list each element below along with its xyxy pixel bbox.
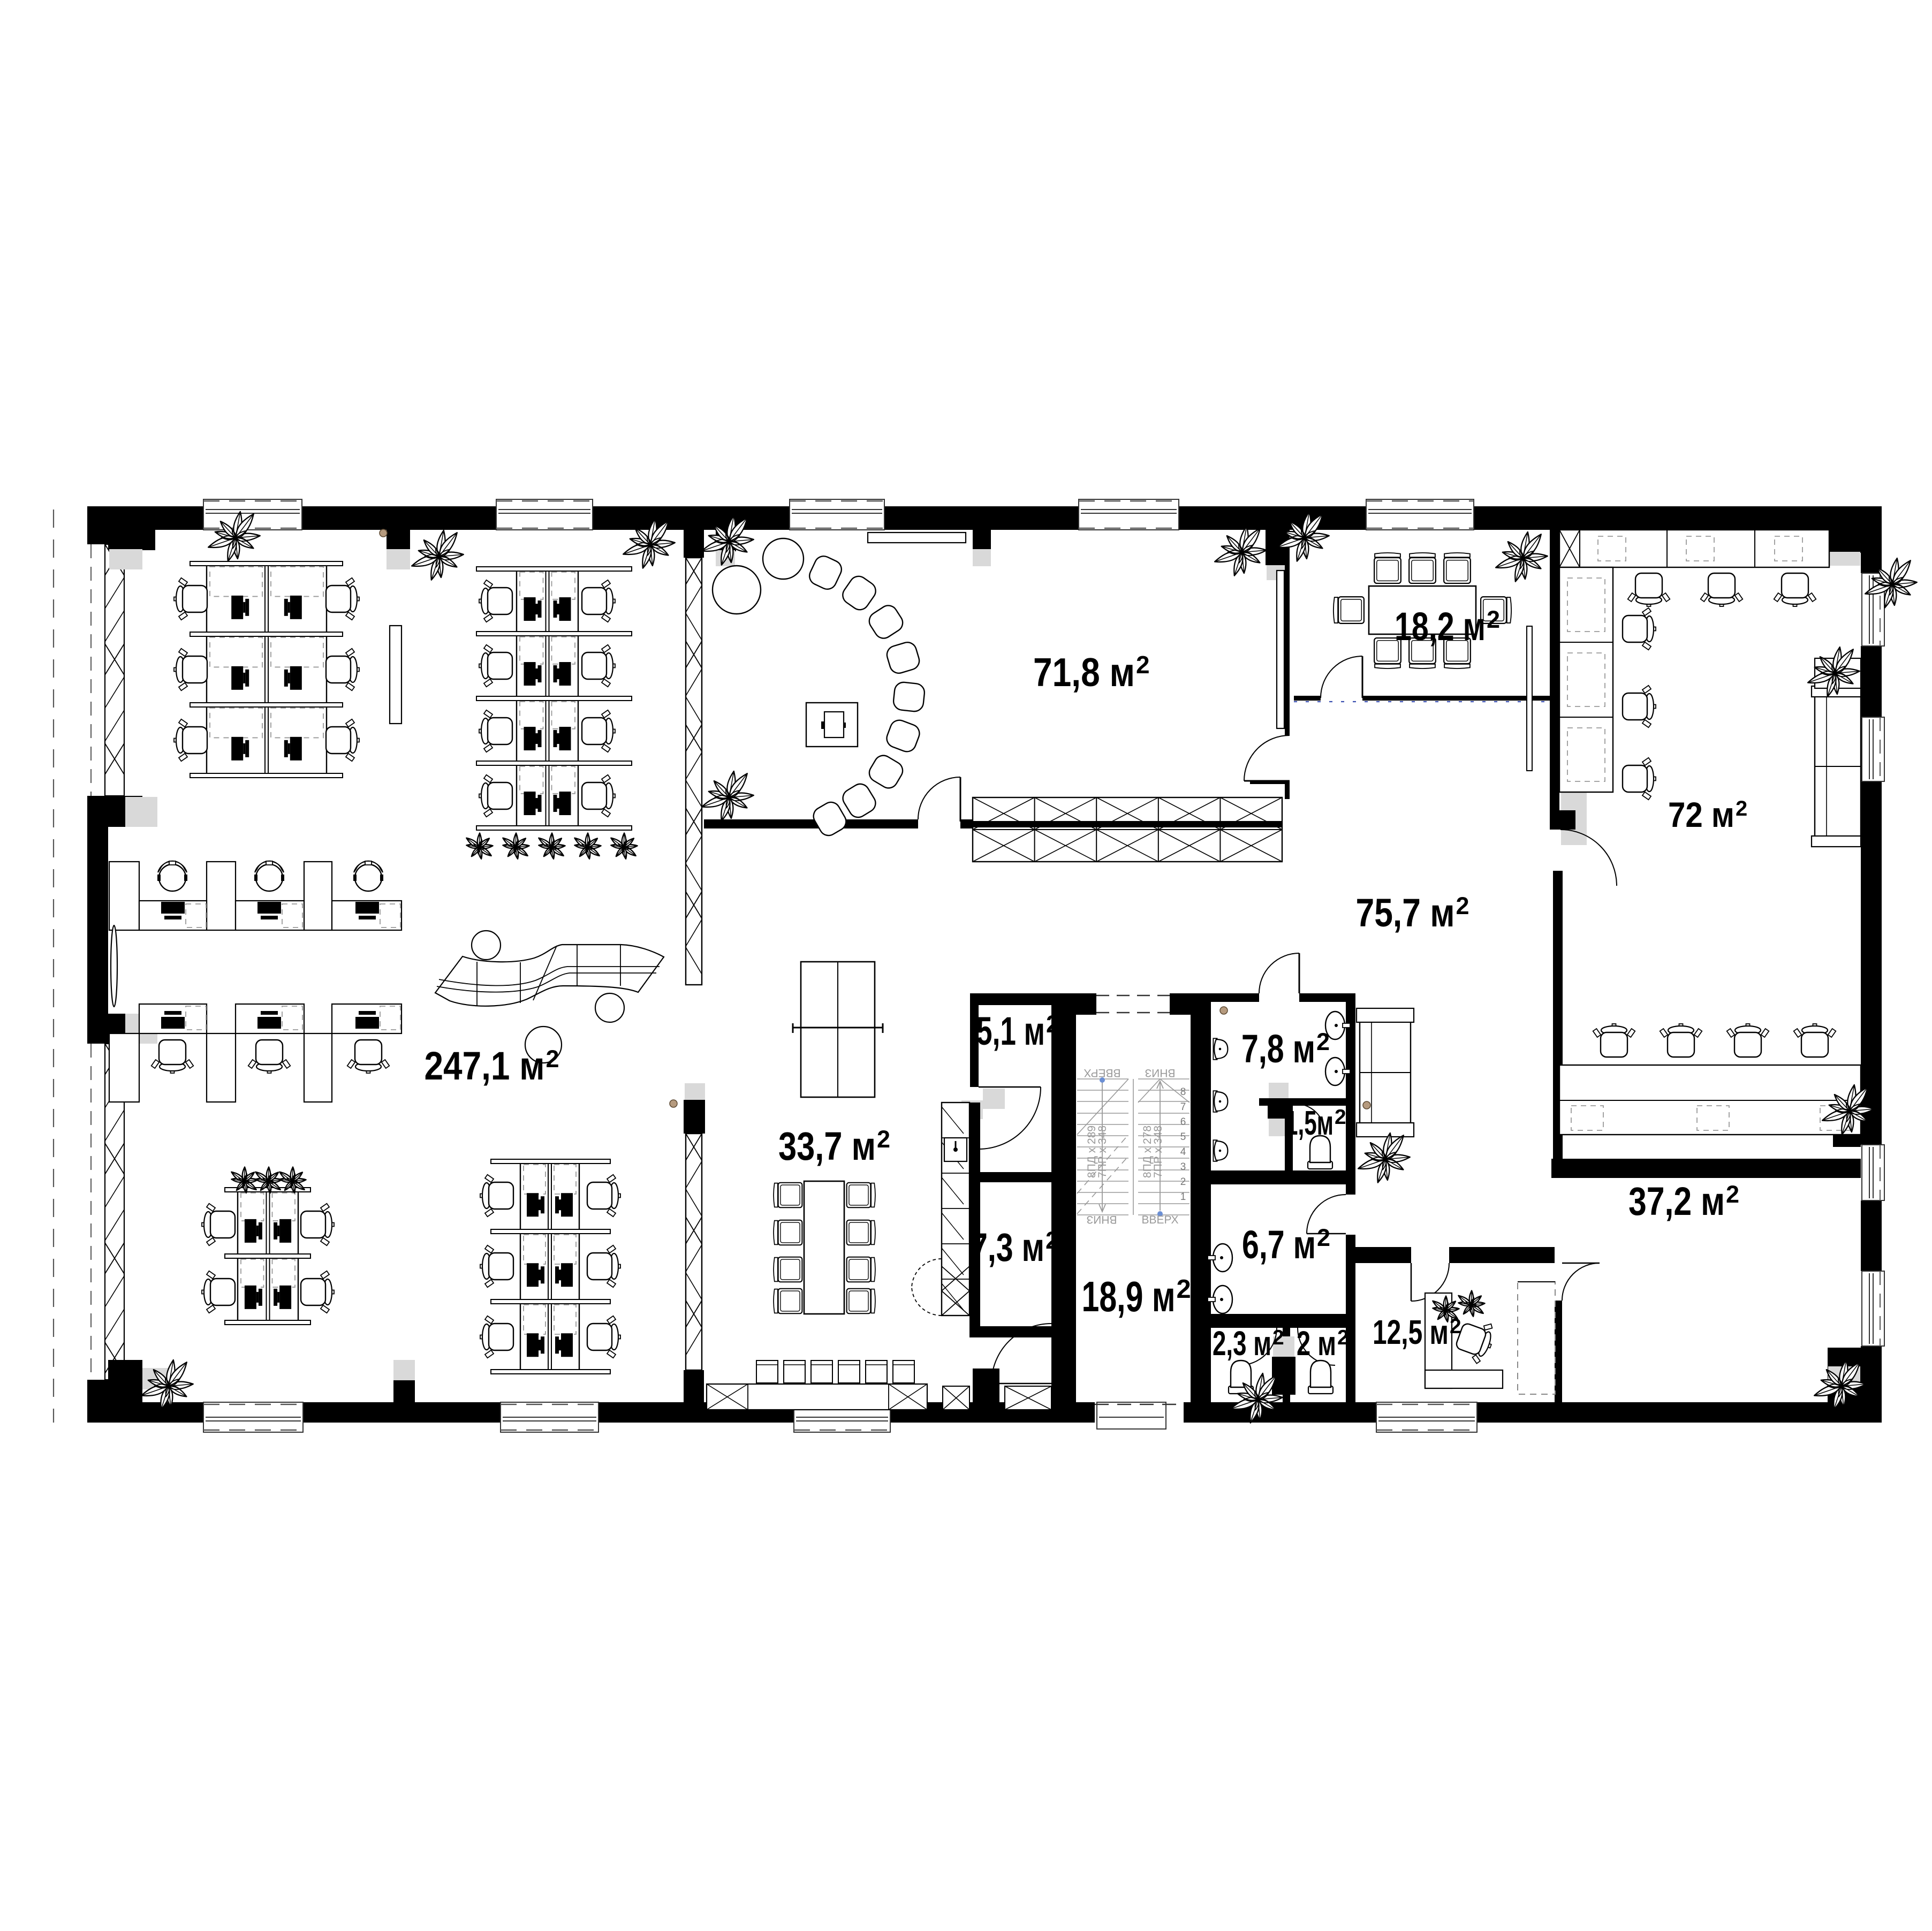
- svg-text:1,5м: 1,5м: [1285, 1104, 1334, 1142]
- svg-text:5,1 м: 5,1 м: [976, 1009, 1045, 1053]
- svg-text:2: 2: [1487, 606, 1500, 633]
- svg-text:18,9 м: 18,9 м: [1082, 1273, 1176, 1320]
- svg-text:2: 2: [1046, 1010, 1059, 1038]
- svg-text:6: 6: [1180, 1116, 1186, 1128]
- svg-text:7,3 м: 7,3 м: [971, 1225, 1044, 1269]
- svg-text:1: 1: [1180, 1191, 1186, 1203]
- svg-text:2: 2: [1316, 1028, 1330, 1055]
- svg-text:2: 2: [877, 1126, 890, 1153]
- svg-text:2: 2: [1736, 797, 1747, 820]
- svg-text:71,8 м: 71,8 м: [1033, 650, 1135, 695]
- svg-text:18,2 м: 18,2 м: [1395, 604, 1486, 649]
- svg-text:2: 2: [1317, 1224, 1330, 1251]
- svg-text:7,8 м: 7,8 м: [1241, 1027, 1315, 1071]
- svg-text:8: 8: [1180, 1086, 1186, 1098]
- svg-text:37,2 м: 37,2 м: [1628, 1179, 1725, 1223]
- svg-text:2: 2: [1136, 651, 1150, 679]
- svg-text:2: 2: [1045, 1227, 1059, 1254]
- svg-text:7: 7: [1180, 1101, 1186, 1113]
- svg-text:72 м: 72 м: [1668, 795, 1734, 834]
- svg-text:7ПР х 348: 7ПР х 348: [1152, 1126, 1164, 1178]
- svg-text:3: 3: [1180, 1161, 1186, 1173]
- svg-text:ВВЕРХ: ВВЕРХ: [1141, 1214, 1178, 1226]
- svg-text:5: 5: [1180, 1131, 1186, 1143]
- svg-text:ВНИЗ: ВНИЗ: [1145, 1067, 1176, 1079]
- svg-text:2: 2: [1450, 1315, 1461, 1338]
- svg-text:2: 2: [1726, 1181, 1739, 1208]
- svg-text:4: 4: [1180, 1146, 1186, 1158]
- svg-text:6,7 м: 6,7 м: [1242, 1222, 1316, 1267]
- svg-text:2: 2: [1177, 1275, 1191, 1304]
- svg-text:12,5 м: 12,5 м: [1373, 1313, 1449, 1351]
- svg-text:2: 2: [1180, 1176, 1186, 1188]
- svg-text:ВНИЗ: ВНИЗ: [1087, 1213, 1117, 1226]
- svg-text:33,7 м: 33,7 м: [778, 1124, 876, 1168]
- svg-text:2 м: 2 м: [1297, 1324, 1336, 1363]
- svg-text:2: 2: [1335, 1106, 1346, 1129]
- svg-text:2: 2: [1272, 1326, 1284, 1349]
- svg-text:75,7 м: 75,7 м: [1356, 891, 1455, 935]
- svg-text:ВВЕРХ: ВВЕРХ: [1084, 1067, 1120, 1079]
- svg-text:2: 2: [1456, 892, 1469, 919]
- svg-text:2: 2: [546, 1045, 559, 1073]
- svg-text:2: 2: [1337, 1326, 1349, 1349]
- svg-text:7ПР х 348: 7ПР х 348: [1096, 1126, 1109, 1178]
- svg-text:247,1 м: 247,1 м: [425, 1044, 545, 1088]
- svg-text:2,3 м: 2,3 м: [1213, 1324, 1271, 1363]
